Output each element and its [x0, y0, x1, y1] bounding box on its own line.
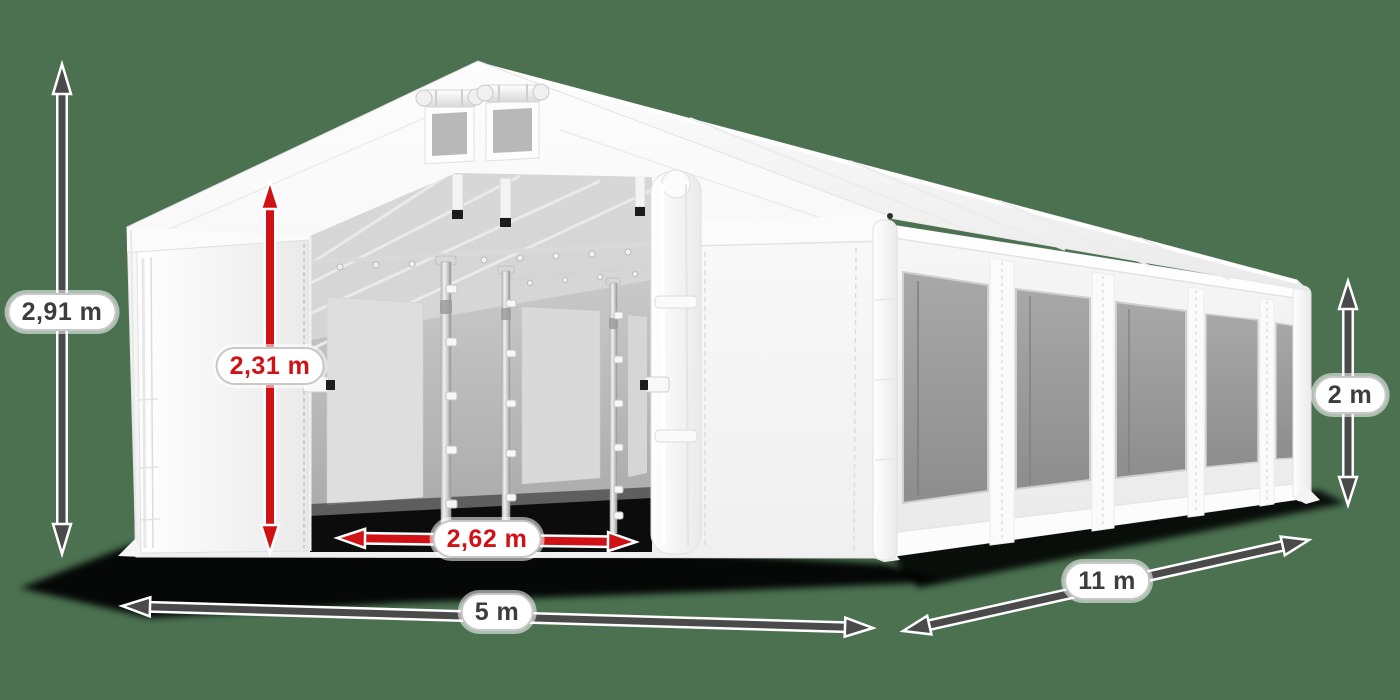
gable-vent-right [477, 84, 549, 161]
interior-window [327, 297, 423, 505]
dimension-label-total-height: 2,91 m [8, 293, 117, 331]
dimension-label-door-height: 2,31 m [216, 347, 325, 385]
side-window [1016, 289, 1090, 489]
doorway [305, 172, 655, 552]
dimension-label-side-wall-height: 2 m [1314, 376, 1387, 414]
product-image: 2,91 m 2,31 m 2,62 m 5 m 11 m 2 m [0, 0, 1400, 700]
dimension-label-door-width: 2,62 m [433, 520, 542, 558]
side-window [1206, 314, 1258, 467]
corner-pillar-front [873, 220, 897, 560]
interior-window [628, 315, 647, 477]
side-window [1116, 302, 1186, 478]
dimension-label-front-width: 5 m [461, 593, 534, 631]
side-window [903, 272, 988, 503]
interior-window [522, 307, 600, 484]
rolled-door-panel [651, 170, 701, 554]
dimension-label-side-length: 11 m [1064, 562, 1150, 600]
corner-pillar-rear [1293, 286, 1311, 501]
gable-vent-left [416, 89, 484, 164]
tent-illustration [0, 0, 1400, 700]
left-door-panel [137, 240, 308, 553]
